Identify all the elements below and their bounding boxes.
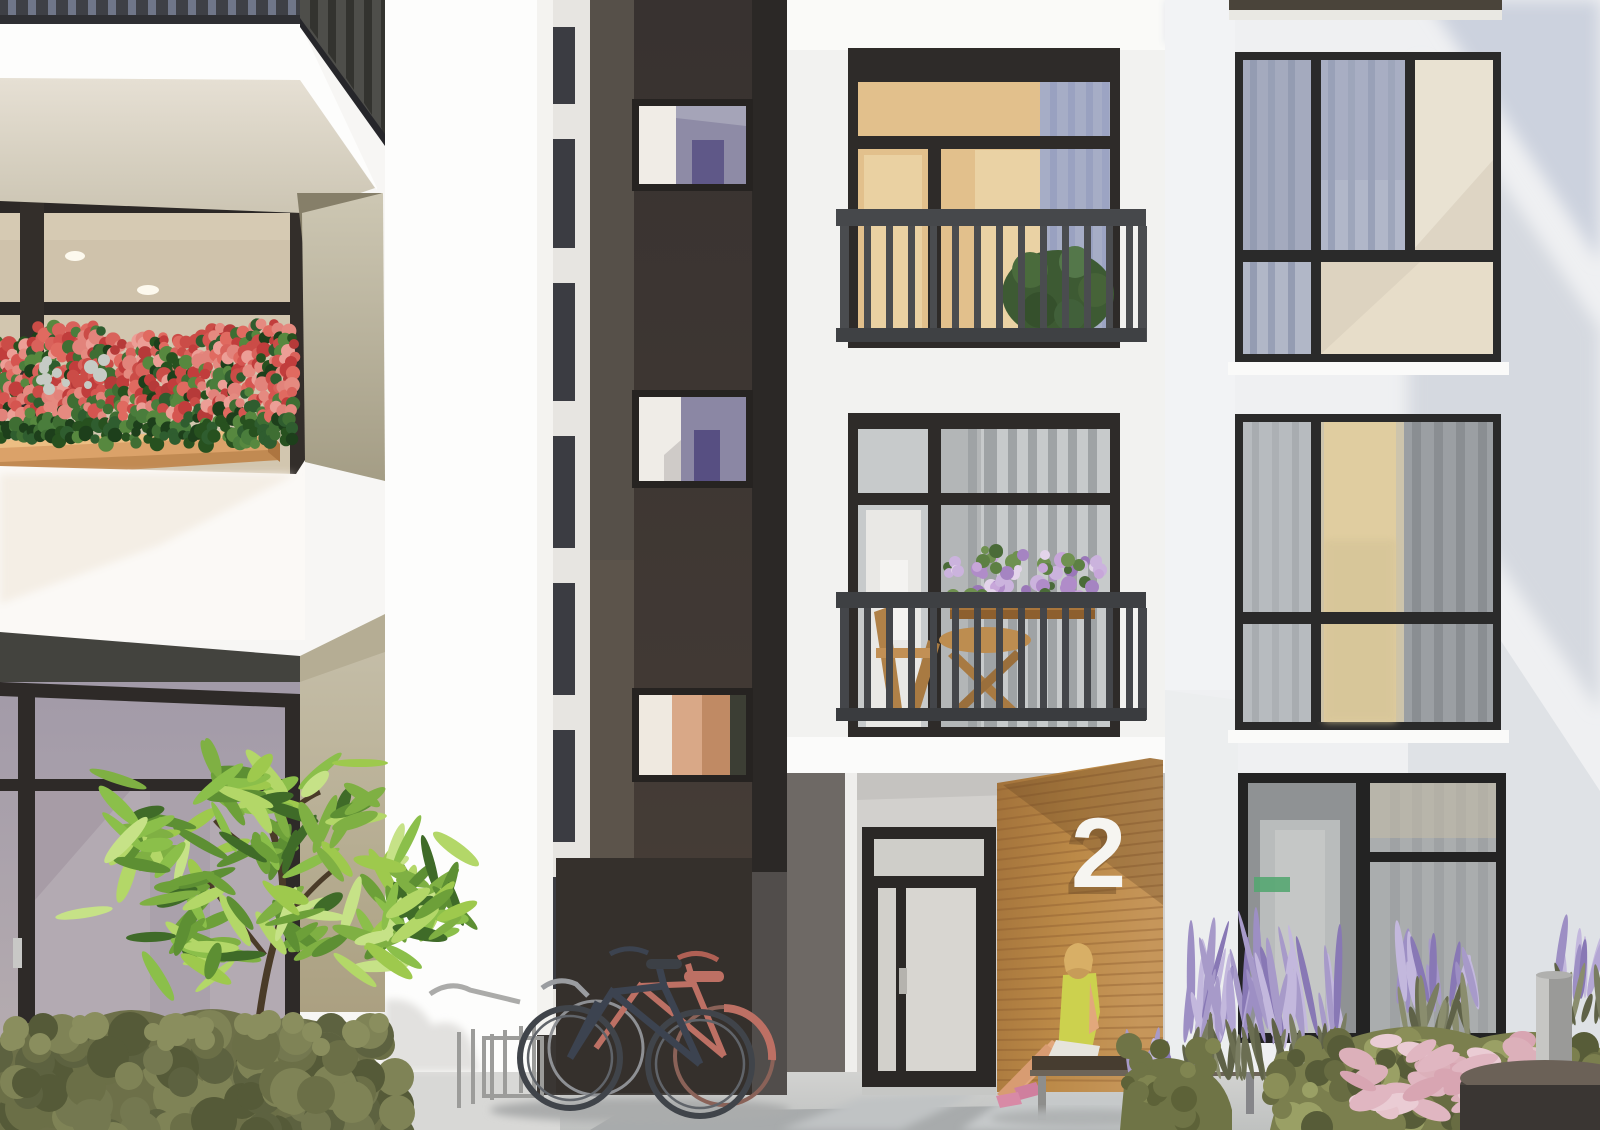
svg-text:2: 2 xyxy=(1071,797,1126,908)
